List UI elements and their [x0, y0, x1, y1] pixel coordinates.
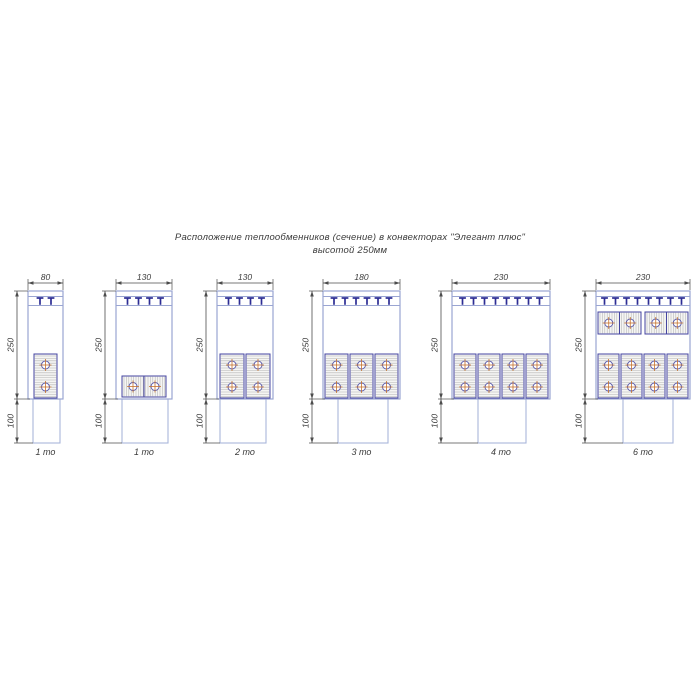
dimension-arrow [116, 281, 122, 285]
diagram-caption: 2 то [234, 447, 255, 457]
heat-exchanger-cell [34, 354, 57, 398]
heat-exchanger-cell [667, 354, 688, 398]
air-duct [220, 399, 266, 443]
convector-diagram-3: 1302501002 то [195, 272, 274, 457]
dimension-arrow [103, 399, 107, 405]
height-value: 250 [430, 338, 440, 353]
heat-exchanger-cell [598, 312, 641, 334]
duct-height-value: 100 [195, 414, 205, 428]
width-dimension: 230 [452, 272, 550, 290]
diagram-caption: 6 то [633, 447, 653, 457]
duct-height-value: 100 [301, 414, 311, 428]
dimension-arrow [452, 281, 458, 285]
dimension-arrow [310, 291, 314, 297]
dimension-arrow [204, 438, 208, 444]
technical-drawing: Расположение теплообменников (сечение) в… [0, 0, 700, 700]
height-value: 250 [301, 338, 311, 353]
dimension-arrow [685, 281, 691, 285]
width-value: 230 [635, 272, 650, 282]
convector-diagram-2: 1302501001 то [94, 272, 173, 457]
heat-exchanger-cell [621, 354, 642, 398]
dimension-arrow [15, 399, 19, 405]
dimension-arrow [103, 394, 107, 400]
heat-exchanger-cell [325, 354, 348, 398]
width-value: 80 [41, 272, 51, 282]
dimension-arrow [545, 281, 551, 285]
heat-exchanger-cell [246, 354, 270, 398]
dimension-arrow [310, 399, 314, 405]
dimension-arrow [167, 281, 173, 285]
heat-exchanger-cell [454, 354, 476, 398]
dimension-arrow [204, 399, 208, 405]
diagram-caption: 3 то [352, 447, 372, 457]
dimension-arrow [583, 438, 587, 444]
air-duct [122, 399, 168, 443]
convector-sections-drawing: 802501001 то1302501001 то1302501002 то18… [0, 0, 700, 700]
height-value: 250 [574, 338, 584, 353]
duct-height-value: 100 [574, 414, 584, 428]
dimension-arrow [204, 291, 208, 297]
dimension-arrow [15, 291, 19, 297]
convector-diagram-6: 2302501006 то [574, 272, 691, 457]
height-value: 250 [195, 338, 205, 353]
dimension-arrow [439, 394, 443, 400]
width-value: 130 [137, 272, 151, 282]
width-value: 130 [238, 272, 252, 282]
width-dimension: 180 [323, 272, 400, 290]
dimension-arrow [103, 291, 107, 297]
height-value: 250 [6, 338, 16, 353]
convector-diagram-1: 802501001 то [6, 272, 64, 457]
dimension-arrow [439, 291, 443, 297]
heat-exchanger-cell [220, 354, 244, 398]
heat-exchanger-cell [644, 354, 665, 398]
convector-diagram-4: 1802501003 то [301, 272, 401, 457]
height-dimension: 250100 [195, 291, 221, 443]
heat-exchanger-cell [350, 354, 373, 398]
diagram-caption: 1 то [36, 447, 56, 457]
dimension-arrow [204, 394, 208, 400]
heat-exchanger-cell [526, 354, 548, 398]
dimension-arrow [323, 281, 329, 285]
duct-height-value: 100 [94, 414, 104, 428]
heat-exchanger-row [34, 354, 57, 398]
dimension-arrow [583, 291, 587, 297]
width-value: 180 [354, 272, 368, 282]
width-value: 230 [493, 272, 508, 282]
dimension-arrow [103, 438, 107, 444]
dimension-arrow [310, 394, 314, 400]
heat-exchanger-cell [598, 354, 619, 398]
air-duct [478, 399, 526, 443]
dimension-arrow [15, 438, 19, 444]
dimension-arrow [596, 281, 602, 285]
diagram-caption: 1 то [134, 447, 154, 457]
width-dimension: 130 [217, 272, 273, 290]
air-duct [33, 399, 60, 443]
dimension-arrow [439, 438, 443, 444]
dimension-arrow [439, 399, 443, 405]
dimension-arrow [58, 281, 64, 285]
dimension-arrow [15, 394, 19, 400]
width-dimension: 80 [28, 272, 63, 290]
heat-exchanger-row [325, 354, 398, 398]
dimension-arrow [583, 399, 587, 405]
air-duct [338, 399, 388, 443]
height-value: 250 [94, 338, 104, 353]
width-dimension: 130 [116, 272, 172, 290]
air-duct [623, 399, 673, 443]
dimension-arrow [310, 438, 314, 444]
heat-exchanger-cell [502, 354, 524, 398]
heat-exchanger-row [122, 376, 166, 397]
diagram-caption: 4 то [491, 447, 511, 457]
heat-exchanger-cell [645, 312, 688, 334]
duct-height-value: 100 [6, 414, 16, 428]
dimension-arrow [268, 281, 274, 285]
heat-exchanger-cell [375, 354, 398, 398]
dimension-arrow [395, 281, 401, 285]
heat-exchanger-cell [478, 354, 500, 398]
convector-diagram-5: 2302501004 то [430, 272, 551, 457]
width-dimension: 230 [596, 272, 690, 290]
dimension-arrow [28, 281, 34, 285]
heat-exchanger-cell [122, 376, 166, 397]
duct-height-value: 100 [430, 414, 440, 428]
dimension-arrow [583, 394, 587, 400]
dimension-arrow [217, 281, 223, 285]
